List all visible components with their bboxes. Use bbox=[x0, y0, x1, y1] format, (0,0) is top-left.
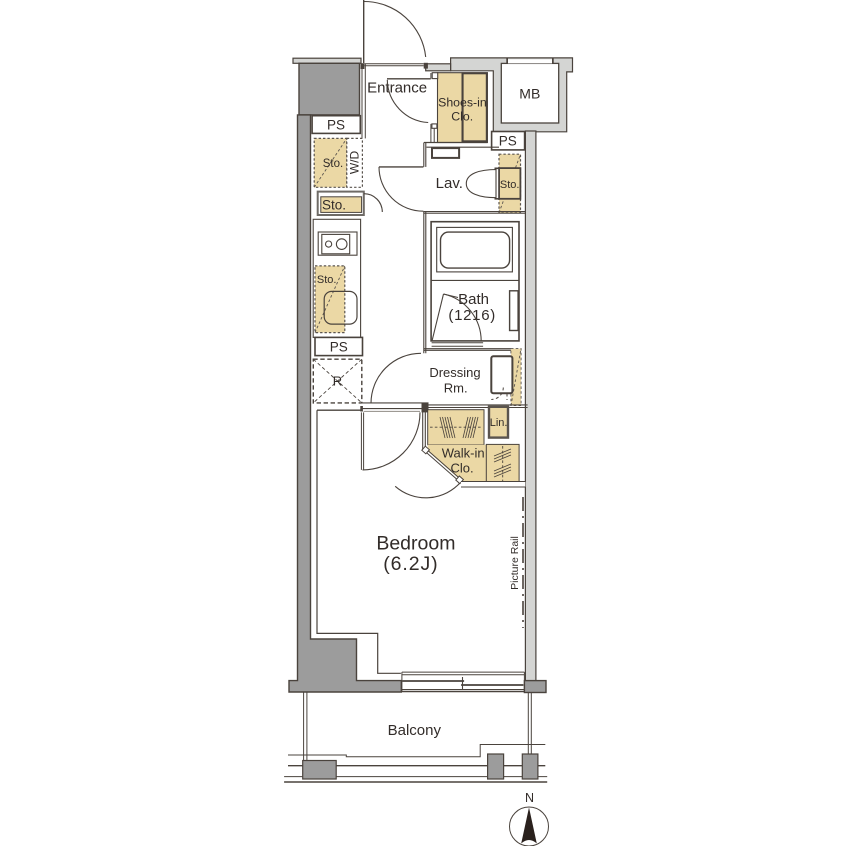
svg-text:Bath: Bath bbox=[458, 291, 489, 308]
svg-text:Lin.: Lin. bbox=[490, 417, 508, 429]
svg-text:PS: PS bbox=[327, 117, 345, 132]
svg-text:Sto.: Sto. bbox=[323, 158, 343, 170]
svg-text:(6.2J): (6.2J) bbox=[383, 553, 438, 575]
svg-text:Shoes-in: Shoes-in bbox=[438, 96, 487, 110]
svg-text:Picture Rail: Picture Rail bbox=[509, 536, 521, 590]
svg-text:Entrance: Entrance bbox=[367, 80, 427, 97]
svg-text:Rm.: Rm. bbox=[444, 381, 468, 396]
svg-text:PS: PS bbox=[499, 134, 517, 149]
svg-text:Dressing: Dressing bbox=[429, 365, 480, 380]
svg-text:Sto.: Sto. bbox=[317, 274, 337, 286]
svg-text:Lav.: Lav. bbox=[436, 175, 463, 192]
svg-text:Sto.: Sto. bbox=[500, 179, 520, 191]
svg-text:Sto.: Sto. bbox=[322, 197, 346, 212]
svg-text:Bedroom: Bedroom bbox=[376, 533, 455, 555]
svg-text:Clo.: Clo. bbox=[451, 109, 473, 123]
svg-text:N: N bbox=[525, 791, 534, 805]
svg-text:MB: MB bbox=[519, 85, 540, 101]
svg-text:(1216): (1216) bbox=[448, 307, 496, 324]
svg-text:W/D: W/D bbox=[348, 151, 362, 175]
svg-text:Balcony: Balcony bbox=[388, 722, 442, 739]
svg-text:PS: PS bbox=[330, 339, 348, 354]
svg-text:R: R bbox=[333, 374, 342, 389]
svg-text:Walk-in: Walk-in bbox=[442, 446, 485, 461]
